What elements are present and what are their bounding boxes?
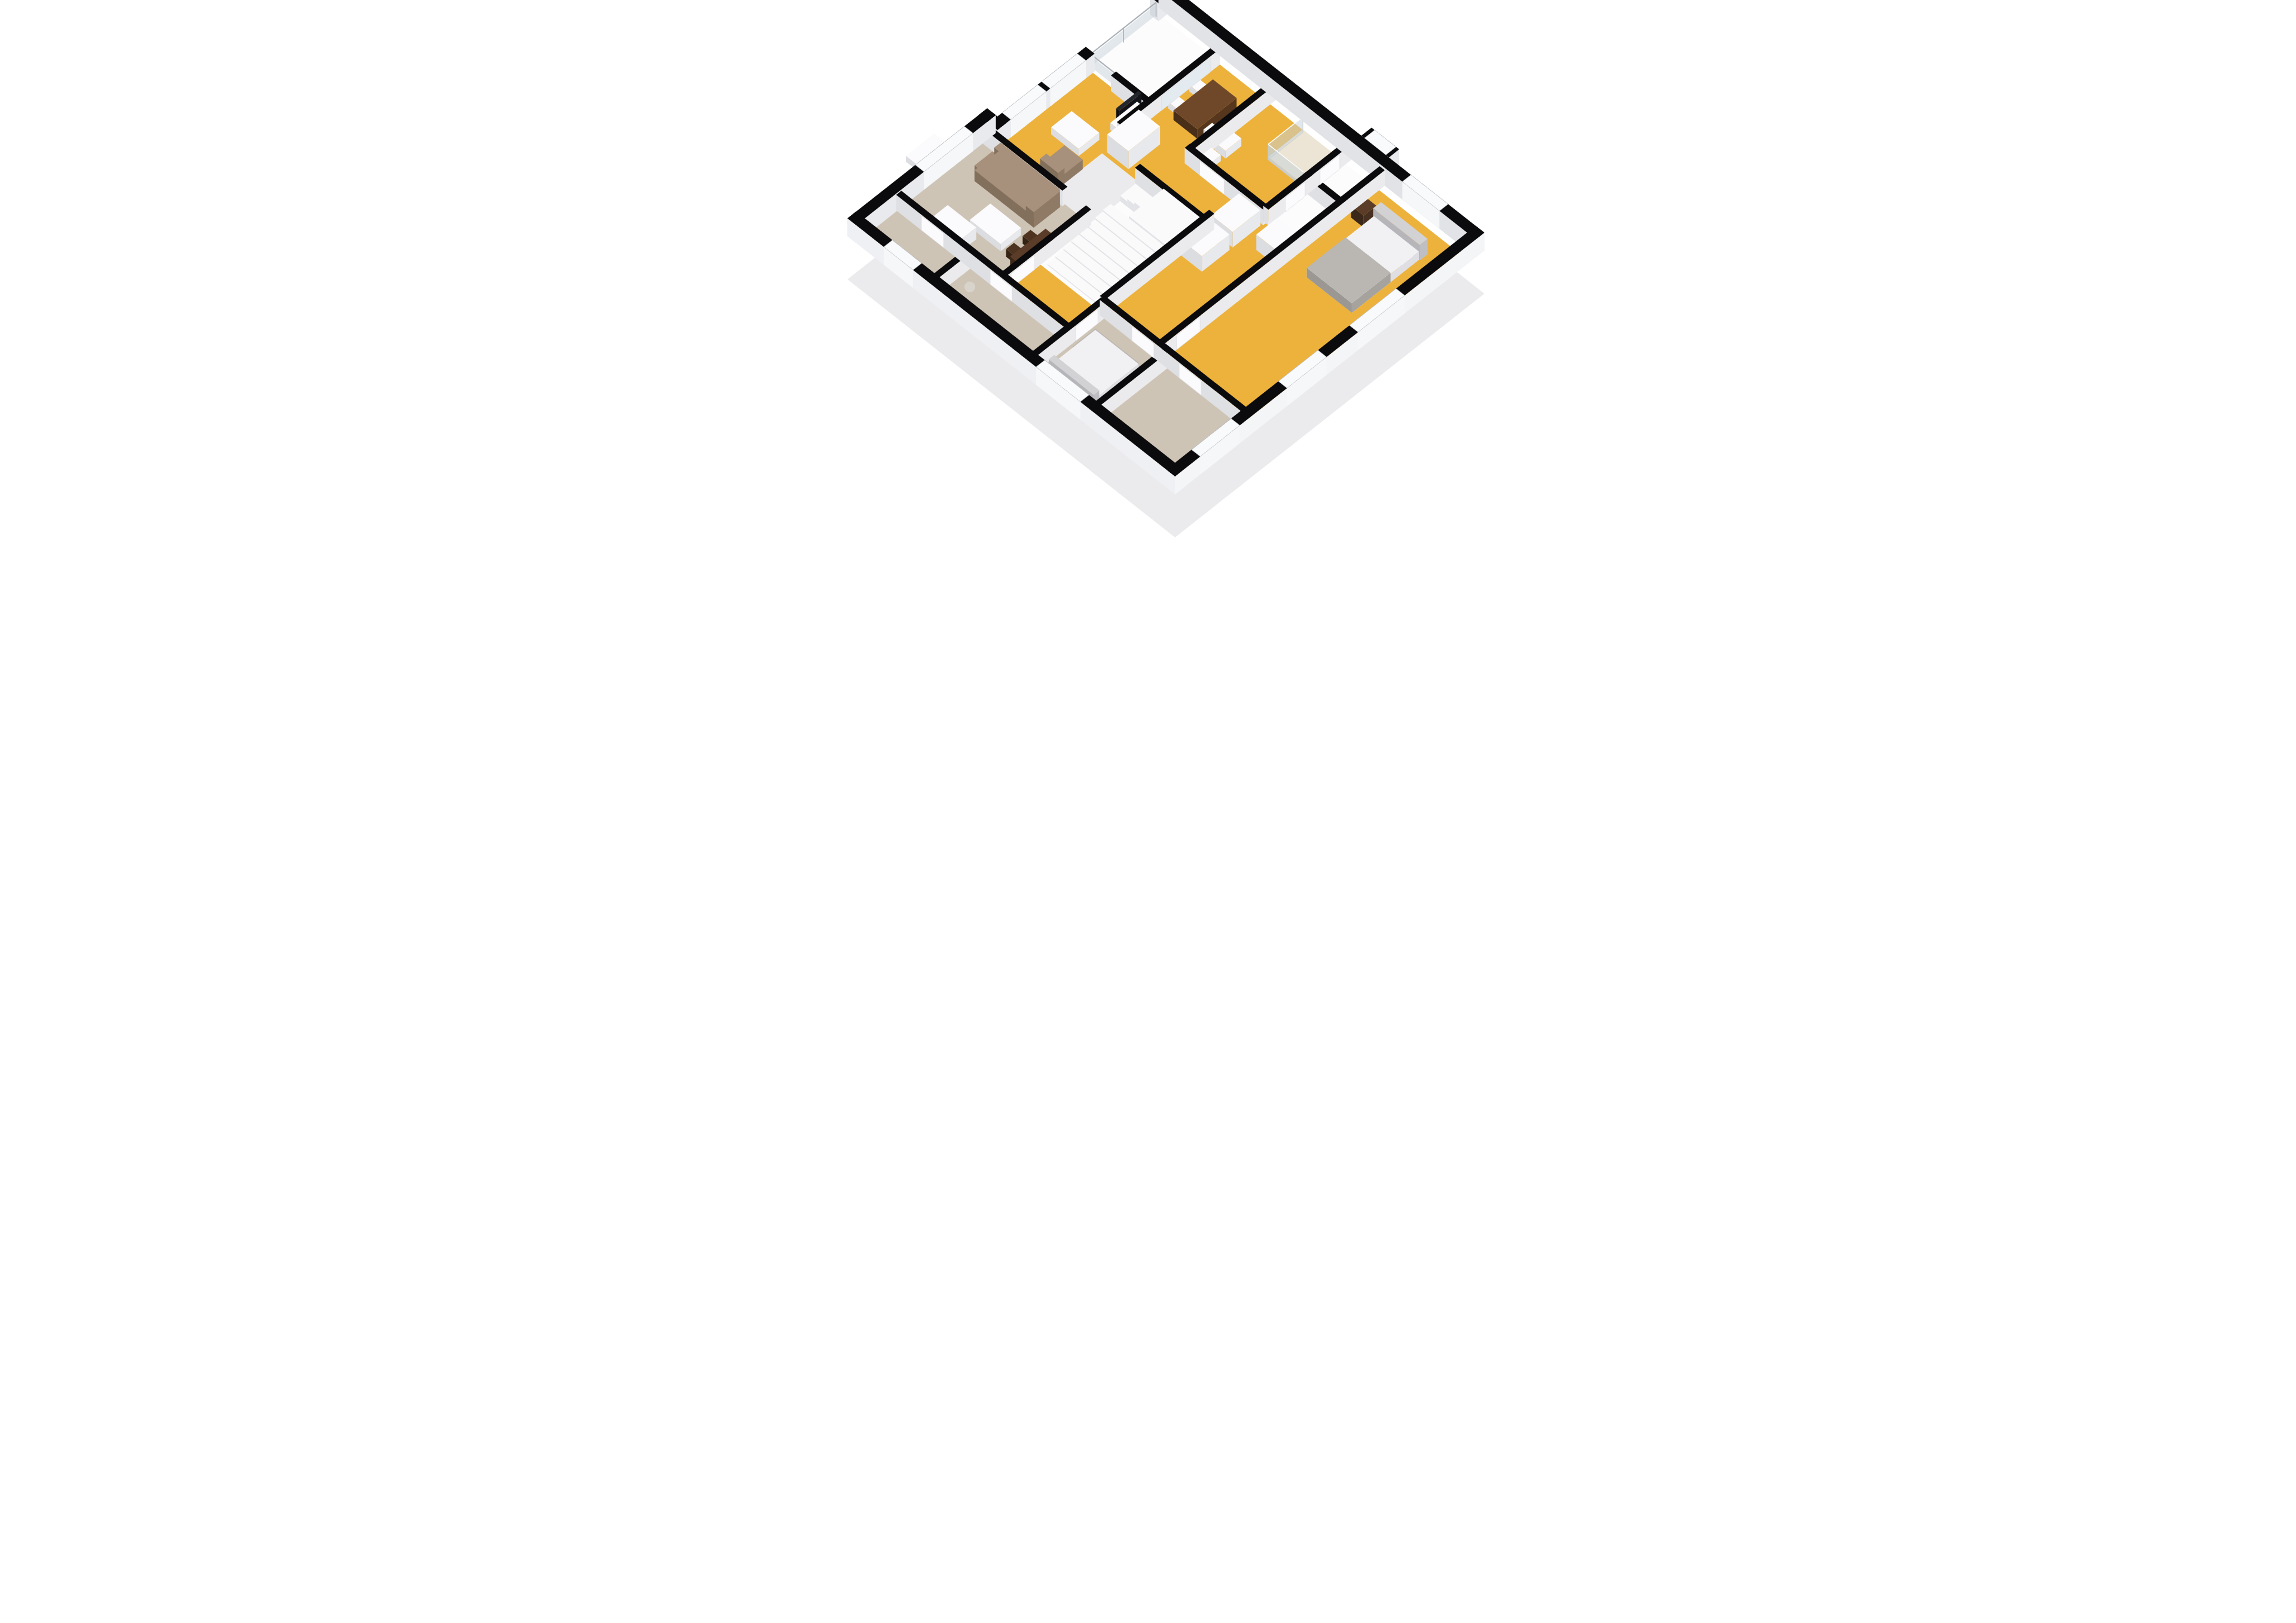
floorplan-figure <box>765 0 1531 541</box>
round-table <box>964 282 975 292</box>
floorplan-3d-view <box>765 0 1531 541</box>
